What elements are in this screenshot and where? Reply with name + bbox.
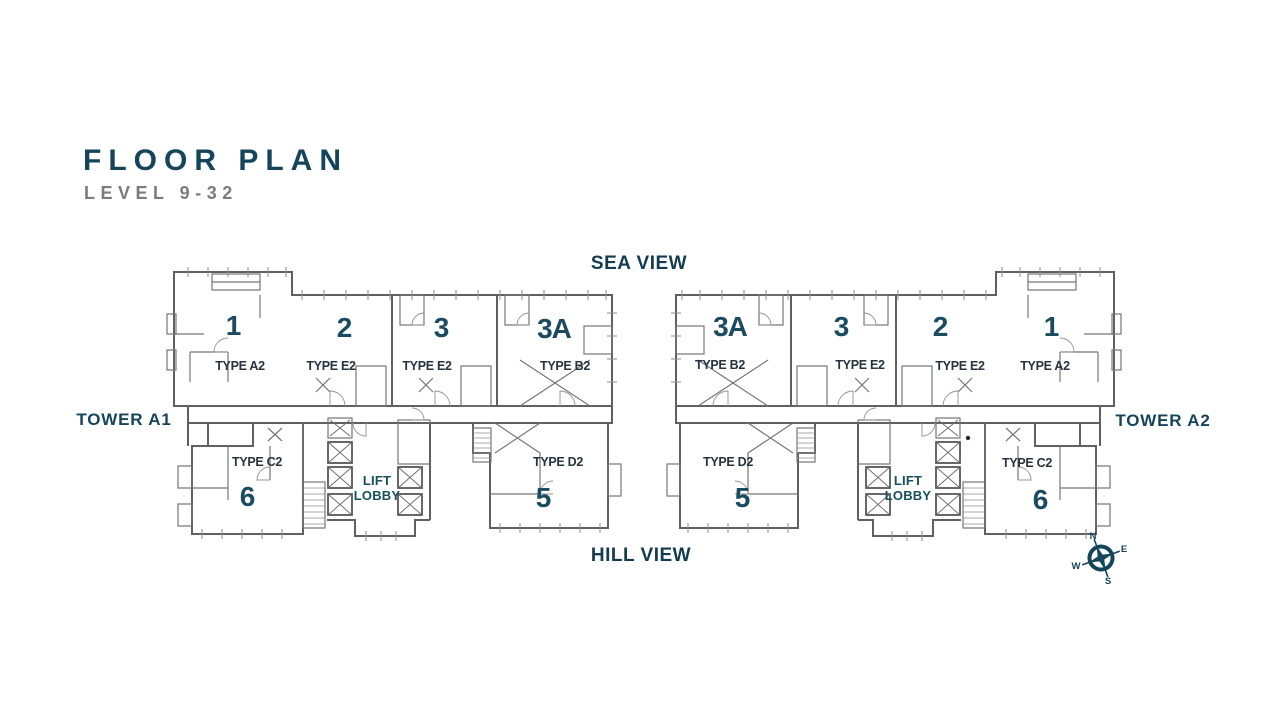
sea-view-label: SEA VIEW [591, 253, 687, 275]
page-title: FLOOR PLAN [83, 144, 348, 178]
tower-a1-label: TOWER A1 [76, 410, 171, 430]
floorplan-drawing: N E W S [0, 0, 1280, 720]
compass-north-label: N [1090, 531, 1097, 542]
unit-6-number: 6 [240, 481, 255, 513]
unit-2-type: TYPE E2 [306, 359, 355, 373]
unit-3a-type: TYPE B2 [540, 359, 590, 373]
unit-3a-number: 3A [713, 311, 747, 343]
unit-6-number: 6 [1033, 484, 1048, 516]
unit-2-type: TYPE E2 [935, 359, 984, 373]
unit-2-number: 2 [337, 312, 352, 344]
floor-plan-page: { "title": { "heading": "FLOOR PLAN", "s… [0, 0, 1280, 720]
lift-lobby-label: LIFT LOBBY [354, 474, 401, 504]
unit-5-number: 5 [735, 482, 750, 514]
page-subtitle: LEVEL 9-32 [84, 183, 238, 204]
lift-lobby-label: LIFT LOBBY [885, 474, 932, 504]
compass-icon: N E W S [1072, 531, 1128, 587]
unit-3-number: 3 [834, 311, 849, 343]
tower-a2-label: TOWER A2 [1115, 411, 1210, 431]
unit-6-type: TYPE C2 [1002, 456, 1052, 470]
unit-1-number: 1 [1044, 311, 1059, 343]
unit-6-type: TYPE C2 [232, 455, 282, 469]
hill-view-label: HILL VIEW [591, 545, 691, 567]
compass-west-label: W [1072, 561, 1081, 572]
unit-3-type: TYPE E2 [835, 358, 884, 372]
unit-5-number: 5 [536, 482, 551, 514]
unit-5-type: TYPE D2 [533, 455, 583, 469]
unit-3-type: TYPE E2 [402, 359, 451, 373]
compass-south-label: S [1105, 576, 1111, 587]
unit-3-number: 3 [434, 312, 449, 344]
unit-1-number: 1 [226, 310, 241, 342]
compass-east-label: E [1121, 544, 1127, 555]
unit-1-type: TYPE A2 [1020, 359, 1070, 373]
column-marker-dot [966, 436, 970, 440]
unit-3a-number: 3A [537, 313, 571, 345]
unit-3a-type: TYPE B2 [695, 358, 745, 372]
unit-5-type: TYPE D2 [703, 455, 753, 469]
unit-1-type: TYPE A2 [215, 359, 265, 373]
unit-2-number: 2 [933, 311, 948, 343]
